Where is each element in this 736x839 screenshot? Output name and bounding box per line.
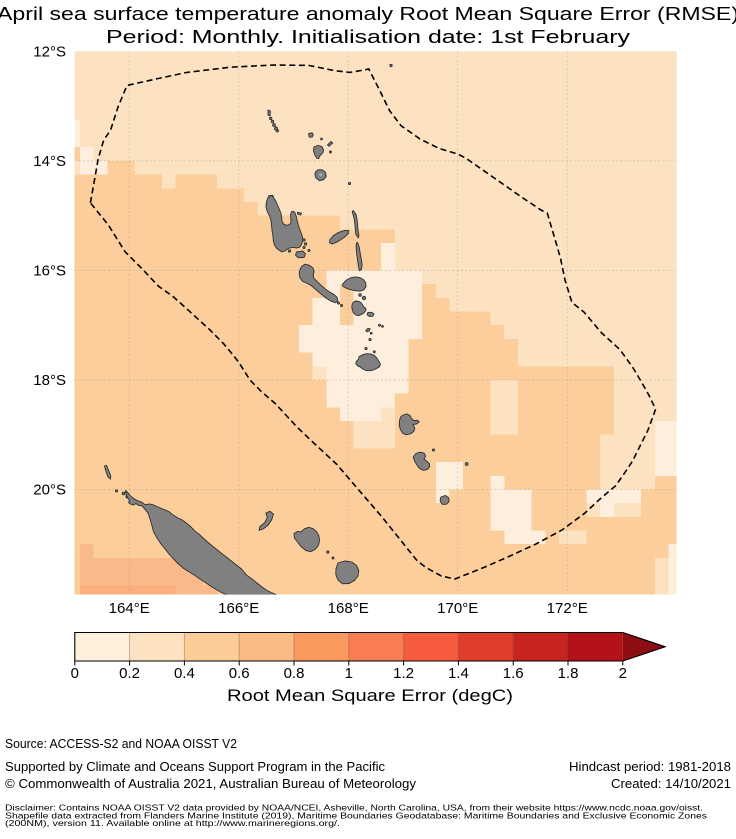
svg-text:Source: ACCESS-S2 and NOAA OIS: Source: ACCESS-S2 and NOAA OISST V2 [5, 737, 237, 751]
svg-text:12°S: 12°S [33, 43, 66, 60]
svg-text:18°S: 18°S [33, 372, 66, 389]
svg-text:(200NM), version 11. Available: (200NM), version 11. Available online at… [5, 818, 340, 828]
svg-text:Root Mean Square Error (degC): Root Mean Square Error (degC) [227, 687, 513, 705]
svg-text:© Commonwealth of Australia 20: © Commonwealth of Australia 2021, Austra… [5, 777, 417, 791]
svg-text:0.8: 0.8 [284, 665, 305, 682]
svg-text:1.8: 1.8 [558, 665, 579, 682]
svg-text:166°E: 166°E [218, 600, 259, 617]
svg-text:1.4: 1.4 [448, 665, 469, 682]
svg-text:Supported by Climate and Ocean: Supported by Climate and Oceans Support … [5, 760, 385, 774]
svg-text:2: 2 [619, 665, 627, 682]
svg-text:14°S: 14°S [33, 153, 66, 170]
svg-text:0.2: 0.2 [119, 665, 140, 682]
svg-text:April sea surface temperature: April sea surface temperature anomaly Ro… [0, 3, 736, 24]
svg-text:1.6: 1.6 [503, 665, 524, 682]
svg-text:0.4: 0.4 [174, 665, 195, 682]
svg-text:0.6: 0.6 [229, 665, 250, 682]
svg-text:164°E: 164°E [109, 600, 150, 617]
svg-text:0: 0 [71, 665, 79, 682]
svg-text:1: 1 [345, 665, 353, 682]
svg-text:20°S: 20°S [33, 482, 66, 499]
svg-text:168°E: 168°E [328, 600, 369, 617]
svg-text:Period: Monthly. Initialisatio: Period: Monthly. Initialisation date: 1s… [106, 26, 631, 47]
svg-text:170°E: 170°E [437, 600, 478, 617]
svg-text:Hindcast period: 1981-2018: Hindcast period: 1981-2018 [569, 760, 731, 774]
svg-text:Created: 14/10/2021: Created: 14/10/2021 [611, 777, 731, 791]
svg-text:172°E: 172°E [547, 600, 588, 617]
svg-text:16°S: 16°S [33, 263, 66, 280]
svg-text:1.2: 1.2 [393, 665, 414, 682]
